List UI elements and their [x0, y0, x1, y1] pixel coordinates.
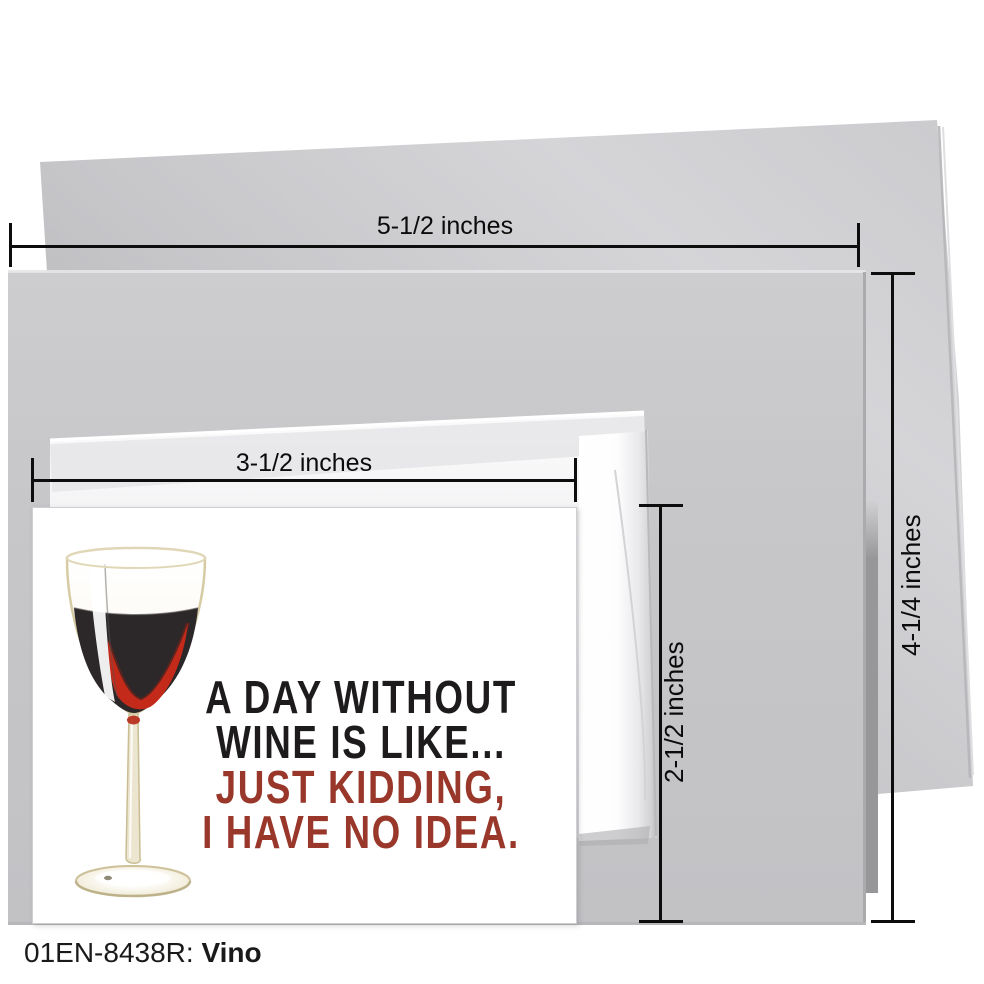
dim-envelope-height-tick-bottom [871, 920, 915, 923]
card-line-2: WINE IS LIKE... [193, 720, 529, 765]
card-line-3: JUST KIDDING, [193, 765, 529, 810]
dim-envelope-width-line [10, 245, 859, 248]
small-envelope-fold [579, 431, 655, 841]
greeting-card: A DAY WITHOUT WINE IS LIKE... JUST KIDDI… [32, 507, 577, 924]
dim-card-width-line [32, 479, 577, 482]
glass-rim [67, 548, 205, 568]
dim-card-width-tick-right [574, 458, 577, 502]
dim-card-width-label: 3-1/2 inches [104, 449, 504, 478]
dim-envelope-width-label: 5-1/2 inches [245, 212, 645, 241]
dim-envelope-width-tick-right [857, 223, 860, 267]
card-line-1: A DAY WITHOUT [193, 675, 529, 720]
dim-envelope-height-line [891, 274, 894, 922]
glass-stem [126, 714, 140, 863]
product-name: Vino [201, 937, 261, 968]
product-mockup: A DAY WITHOUT WINE IS LIKE... JUST KIDDI… [0, 0, 984, 984]
card-message: A DAY WITHOUT WINE IS LIKE... JUST KIDDI… [193, 675, 529, 855]
product-sku: 01EN-8438R: [24, 937, 194, 968]
dim-card-height-tick-bottom [639, 920, 683, 923]
product-caption: 01EN-8438R: Vino [24, 937, 262, 969]
dim-envelope-height-label: 4-1/4 inches [896, 385, 930, 785]
dim-card-height-label: 2-1/2 inches [659, 512, 693, 912]
envelope-seam-shadow [866, 500, 878, 893]
card-line-4: I HAVE NO IDEA. [193, 810, 529, 855]
